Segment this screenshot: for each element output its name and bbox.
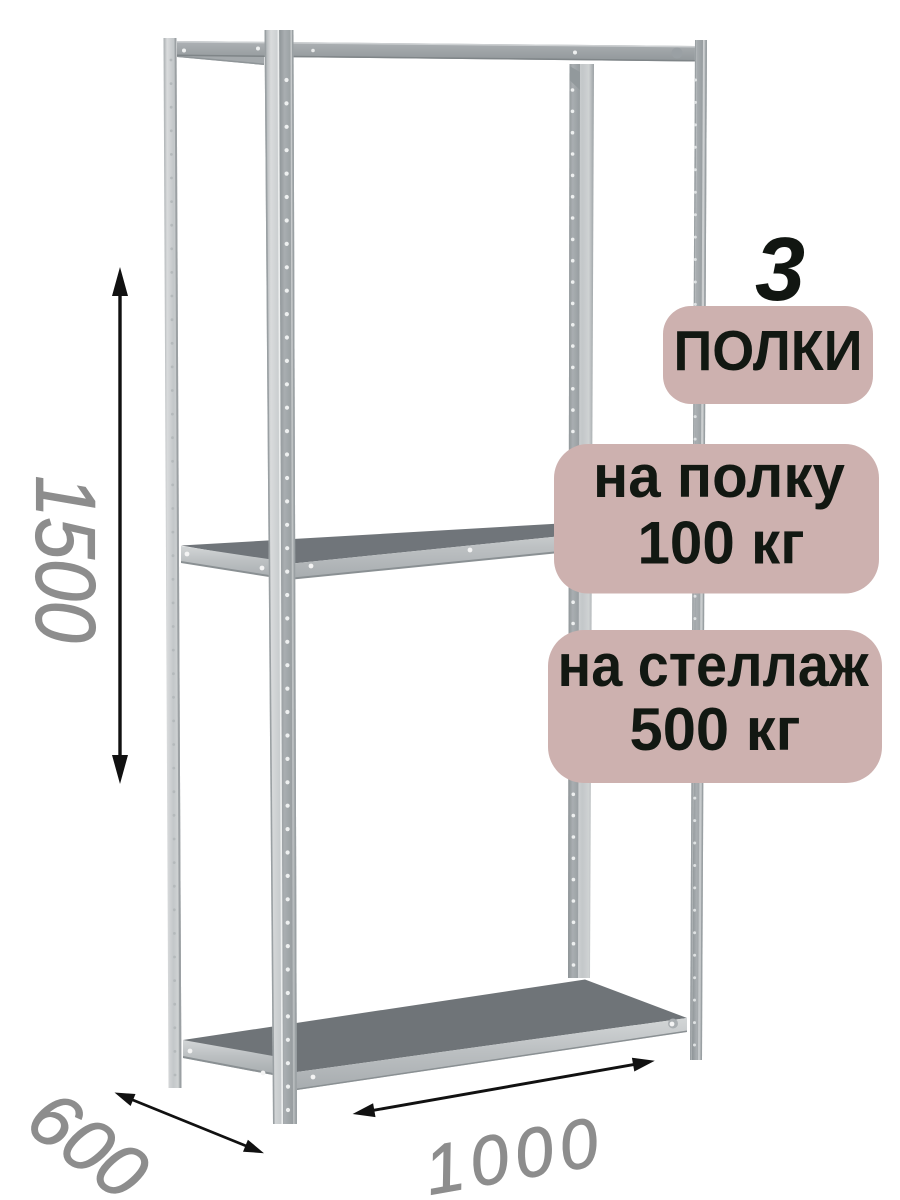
svg-text:600: 600 xyxy=(13,1074,164,1200)
svg-text:100 кг: 100 кг xyxy=(638,510,805,577)
svg-text:на полку: на полку xyxy=(593,443,846,510)
svg-text:3: 3 xyxy=(755,220,805,320)
svg-text:ПОЛКИ: ПОЛКИ xyxy=(674,319,863,383)
svg-text:1500: 1500 xyxy=(19,476,113,643)
svg-text:на стеллаж: на стеллаж xyxy=(558,632,870,699)
svg-text:500 кг: 500 кг xyxy=(630,696,801,763)
svg-text:1000: 1000 xyxy=(419,1102,611,1200)
